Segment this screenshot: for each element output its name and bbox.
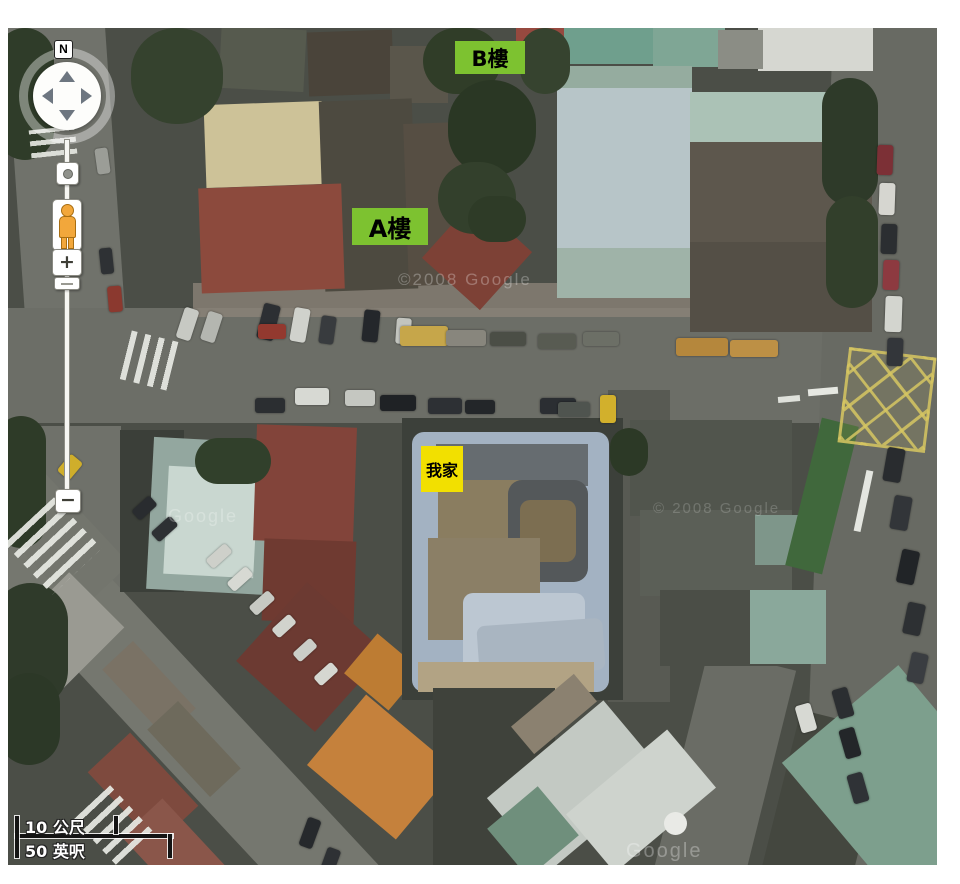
pan-control[interactable] (33, 62, 101, 130)
scale-bar-imperial-tick (168, 834, 172, 858)
pegman-icon (59, 216, 76, 238)
map-frame: ©2008 GoogleGoogle© 2008 GoogleGoogle B樓… (8, 28, 937, 865)
pan-down-button[interactable] (59, 110, 75, 121)
north-indicator: N (54, 40, 73, 59)
pan-left-button[interactable] (42, 88, 53, 104)
zoom-slider-handle[interactable] (54, 277, 80, 290)
pan-up-button[interactable] (59, 71, 75, 82)
map-overlay-layer: B樓 A樓 我家 N + (8, 28, 937, 865)
street-view-pegman-button[interactable] (52, 199, 82, 251)
zoom-in-button[interactable]: + (52, 249, 82, 276)
recenter-button[interactable] (56, 162, 79, 185)
recenter-dot-icon (63, 169, 73, 179)
label-a-building: A樓 (352, 208, 428, 245)
label-my-home: 我家 (421, 446, 463, 492)
pegman-icon (61, 237, 67, 249)
label-b-building: B樓 (455, 41, 525, 74)
zoom-out-button[interactable]: − (55, 489, 81, 513)
pan-right-button[interactable] (81, 88, 92, 104)
scale-bar-metric-tick (114, 816, 118, 834)
zoom-slider-track (65, 140, 69, 502)
pegman-icon (68, 237, 74, 249)
slider-grip-icon (61, 283, 73, 285)
scale-imperial-label: 50 英呎 (25, 838, 85, 862)
scale-bar-left-tick (15, 816, 19, 858)
google-maps-screenshot: ©2008 GoogleGoogle© 2008 GoogleGoogle B樓… (0, 0, 960, 884)
scale-metric-label: 10 公尺 (25, 814, 85, 838)
